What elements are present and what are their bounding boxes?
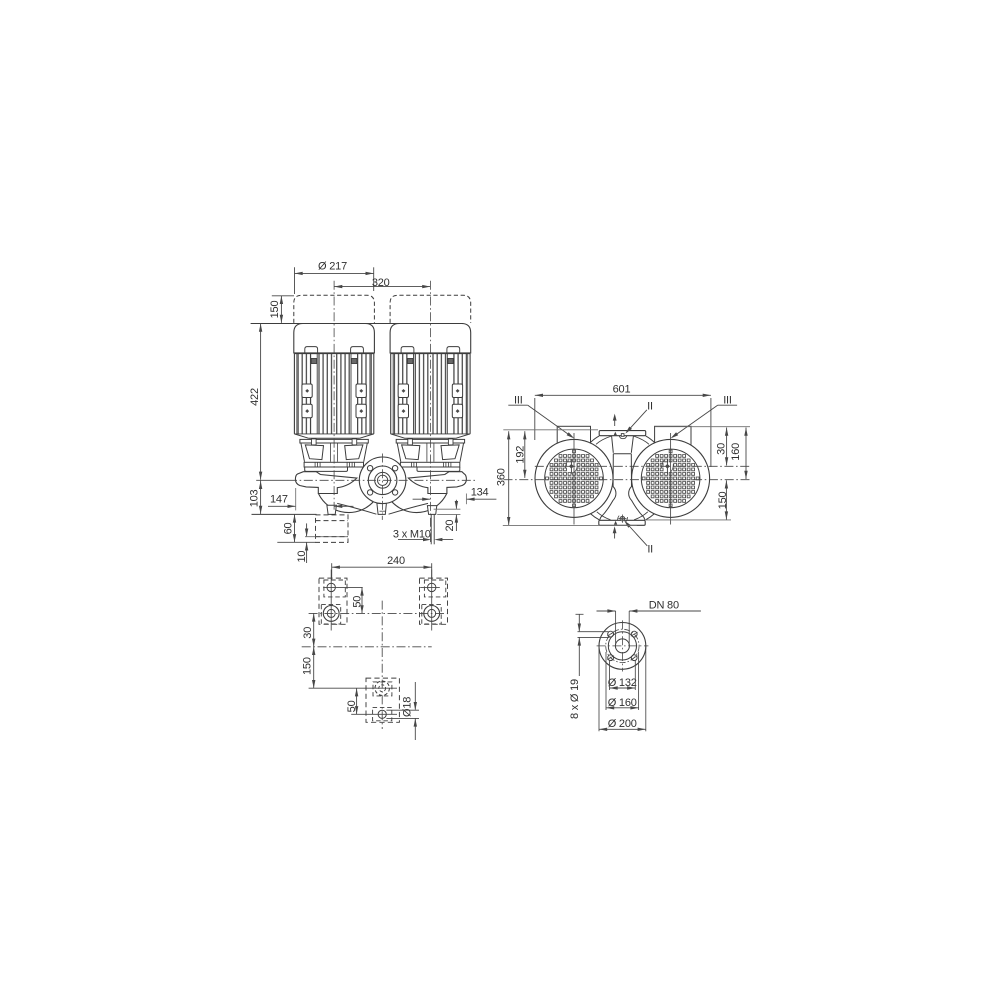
svg-text:III: III <box>514 394 523 406</box>
svg-text:30: 30 <box>302 627 314 639</box>
svg-text:Ø 217: Ø 217 <box>318 261 347 273</box>
svg-text:DN 80: DN 80 <box>649 600 679 612</box>
svg-text:134: 134 <box>471 486 489 498</box>
svg-text:II: II <box>647 401 653 413</box>
svg-text:Ø 132: Ø 132 <box>608 677 637 689</box>
svg-text:150: 150 <box>717 491 729 509</box>
svg-text:60: 60 <box>283 523 295 535</box>
svg-text:30: 30 <box>715 443 727 455</box>
svg-text:II: II <box>647 544 653 556</box>
svg-text:147: 147 <box>270 494 288 506</box>
svg-text:150: 150 <box>269 301 281 319</box>
svg-text:20: 20 <box>444 520 456 532</box>
svg-text:240: 240 <box>387 555 405 567</box>
svg-text:360: 360 <box>495 468 507 486</box>
svg-text:103: 103 <box>248 489 260 507</box>
svg-text:160: 160 <box>730 443 742 461</box>
svg-text:422: 422 <box>249 388 261 406</box>
svg-text:Ø18: Ø18 <box>401 697 413 717</box>
svg-text:601: 601 <box>613 384 631 396</box>
svg-text:150: 150 <box>301 657 313 675</box>
svg-text:8 x Ø 19: 8 x Ø 19 <box>569 679 581 719</box>
svg-text:III: III <box>723 394 732 406</box>
svg-text:Ø 200: Ø 200 <box>608 718 637 730</box>
